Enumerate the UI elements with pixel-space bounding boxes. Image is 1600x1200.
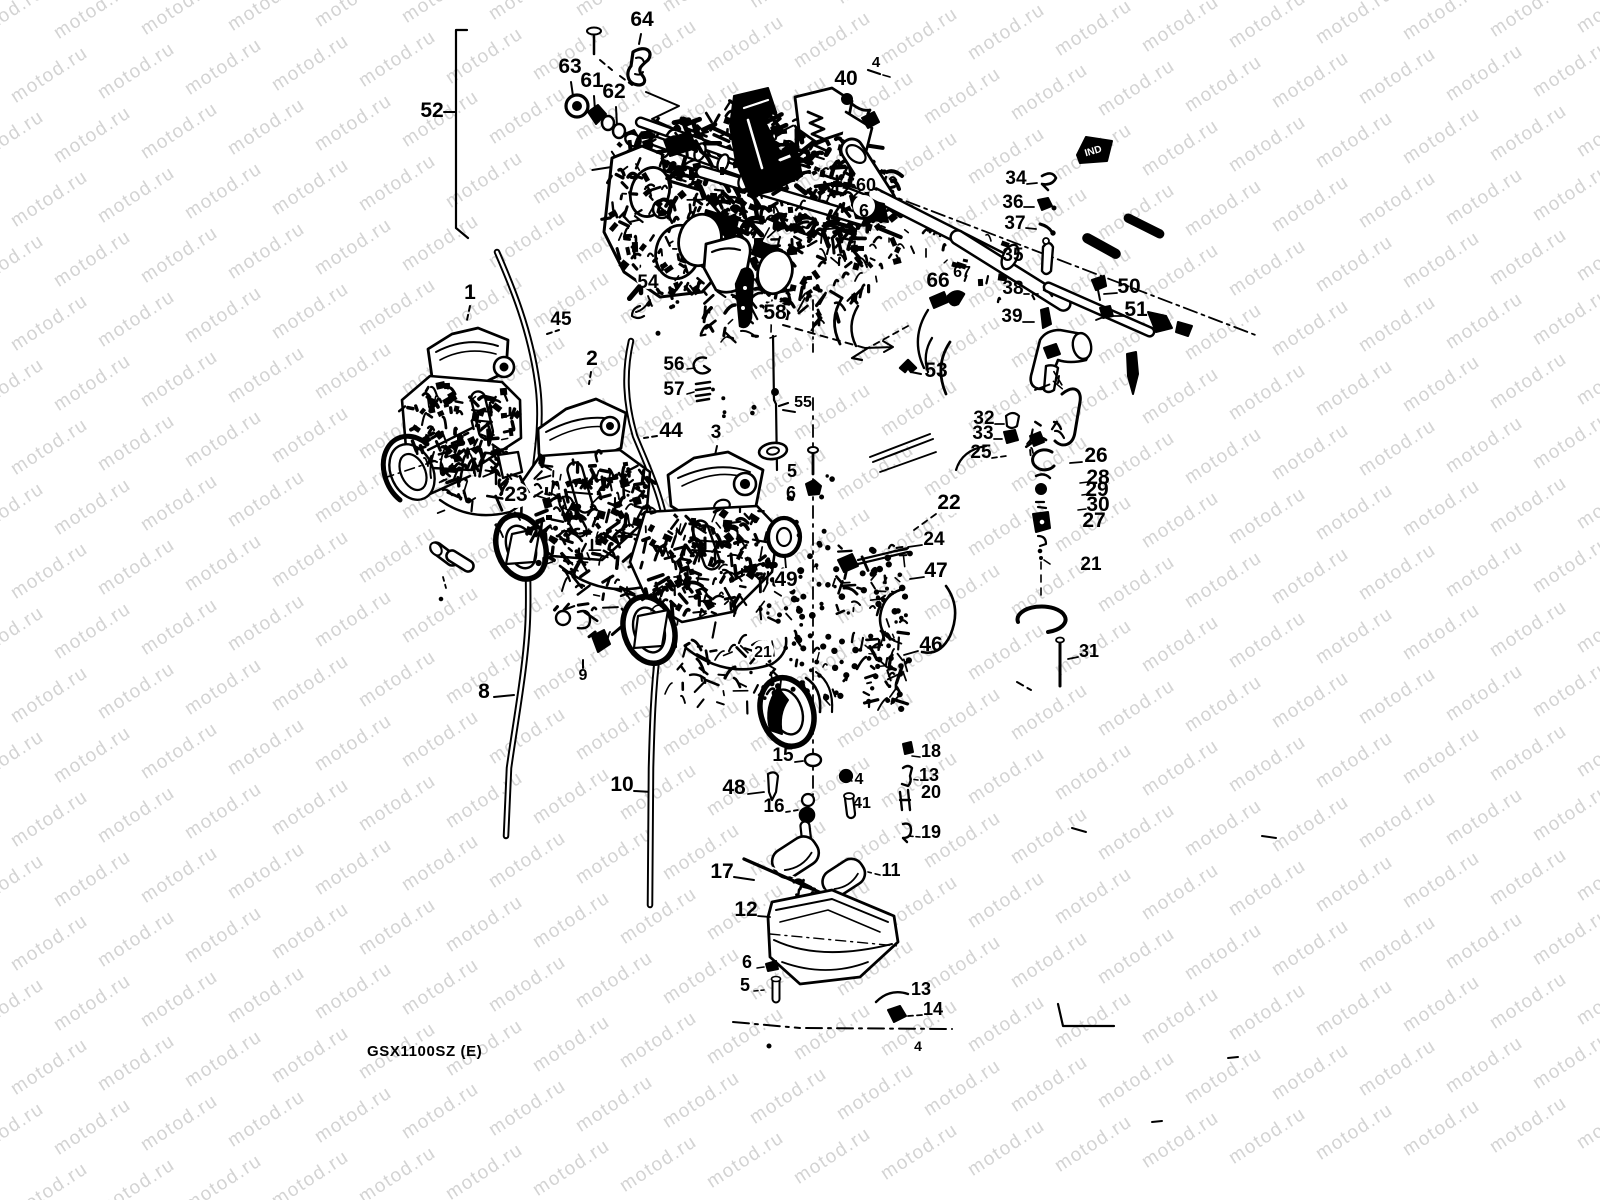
svg-text:54: 54 bbox=[637, 272, 659, 293]
svg-text:41: 41 bbox=[853, 795, 871, 812]
svg-text:63: 63 bbox=[558, 55, 581, 78]
svg-text:44: 44 bbox=[659, 419, 683, 442]
svg-text:27: 27 bbox=[1082, 509, 1105, 532]
svg-text:3: 3 bbox=[711, 422, 722, 443]
svg-text:53: 53 bbox=[924, 359, 947, 382]
svg-text:60: 60 bbox=[856, 175, 876, 195]
svg-text:56: 56 bbox=[663, 354, 684, 375]
svg-text:25: 25 bbox=[970, 442, 992, 463]
svg-text:GSX1100SZ (E): GSX1100SZ (E) bbox=[367, 1043, 482, 1060]
svg-text:22: 22 bbox=[937, 491, 960, 514]
svg-text:55: 55 bbox=[794, 394, 812, 411]
svg-text:35: 35 bbox=[1002, 245, 1024, 266]
svg-text:40: 40 bbox=[834, 67, 857, 90]
svg-text:21: 21 bbox=[1080, 554, 1102, 575]
svg-text:33: 33 bbox=[972, 423, 993, 444]
svg-text:62: 62 bbox=[602, 80, 625, 103]
svg-text:1: 1 bbox=[464, 281, 476, 304]
svg-text:24: 24 bbox=[923, 529, 945, 550]
svg-text:64: 64 bbox=[630, 8, 654, 31]
svg-text:23: 23 bbox=[504, 483, 527, 506]
svg-text:18: 18 bbox=[921, 741, 941, 761]
svg-text:46: 46 bbox=[919, 633, 942, 656]
svg-text:16: 16 bbox=[763, 796, 784, 817]
svg-text:19: 19 bbox=[921, 822, 941, 842]
svg-text:26: 26 bbox=[1084, 444, 1107, 467]
svg-text:50: 50 bbox=[1117, 275, 1140, 298]
svg-text:21: 21 bbox=[754, 644, 772, 661]
svg-text:12: 12 bbox=[734, 898, 757, 921]
svg-text:52: 52 bbox=[420, 99, 443, 122]
svg-text:67: 67 bbox=[953, 264, 971, 281]
svg-text:4: 4 bbox=[914, 1038, 922, 1054]
svg-text:5: 5 bbox=[787, 461, 797, 481]
svg-text:9: 9 bbox=[579, 667, 588, 684]
svg-text:14: 14 bbox=[923, 999, 943, 1019]
svg-text:10: 10 bbox=[610, 773, 633, 796]
svg-text:48: 48 bbox=[722, 776, 746, 799]
svg-text:36: 36 bbox=[1002, 192, 1023, 213]
svg-text:47: 47 bbox=[924, 559, 947, 582]
svg-text:37: 37 bbox=[1004, 213, 1025, 234]
svg-text:6: 6 bbox=[742, 952, 752, 972]
svg-text:6: 6 bbox=[786, 483, 796, 503]
svg-text:34: 34 bbox=[1005, 168, 1027, 189]
svg-text:17: 17 bbox=[710, 860, 733, 883]
svg-text:51: 51 bbox=[1124, 298, 1148, 321]
svg-text:20: 20 bbox=[921, 782, 941, 802]
svg-text:58: 58 bbox=[763, 301, 787, 324]
svg-text:66: 66 bbox=[926, 269, 949, 292]
svg-text:49: 49 bbox=[774, 568, 797, 591]
svg-text:13: 13 bbox=[911, 979, 931, 999]
svg-text:4: 4 bbox=[855, 771, 864, 788]
svg-text:15: 15 bbox=[772, 745, 794, 766]
svg-text:11: 11 bbox=[881, 860, 900, 880]
svg-text:8: 8 bbox=[478, 680, 490, 703]
svg-text:2: 2 bbox=[586, 347, 598, 370]
svg-text:39: 39 bbox=[1001, 306, 1022, 327]
svg-text:45: 45 bbox=[550, 309, 572, 330]
svg-text:5: 5 bbox=[740, 975, 750, 995]
svg-text:31: 31 bbox=[1079, 641, 1099, 661]
svg-text:38: 38 bbox=[1002, 278, 1023, 299]
svg-text:61: 61 bbox=[580, 69, 604, 92]
svg-text:4: 4 bbox=[872, 54, 881, 71]
svg-text:6: 6 bbox=[859, 201, 869, 221]
svg-text:57: 57 bbox=[663, 379, 684, 400]
